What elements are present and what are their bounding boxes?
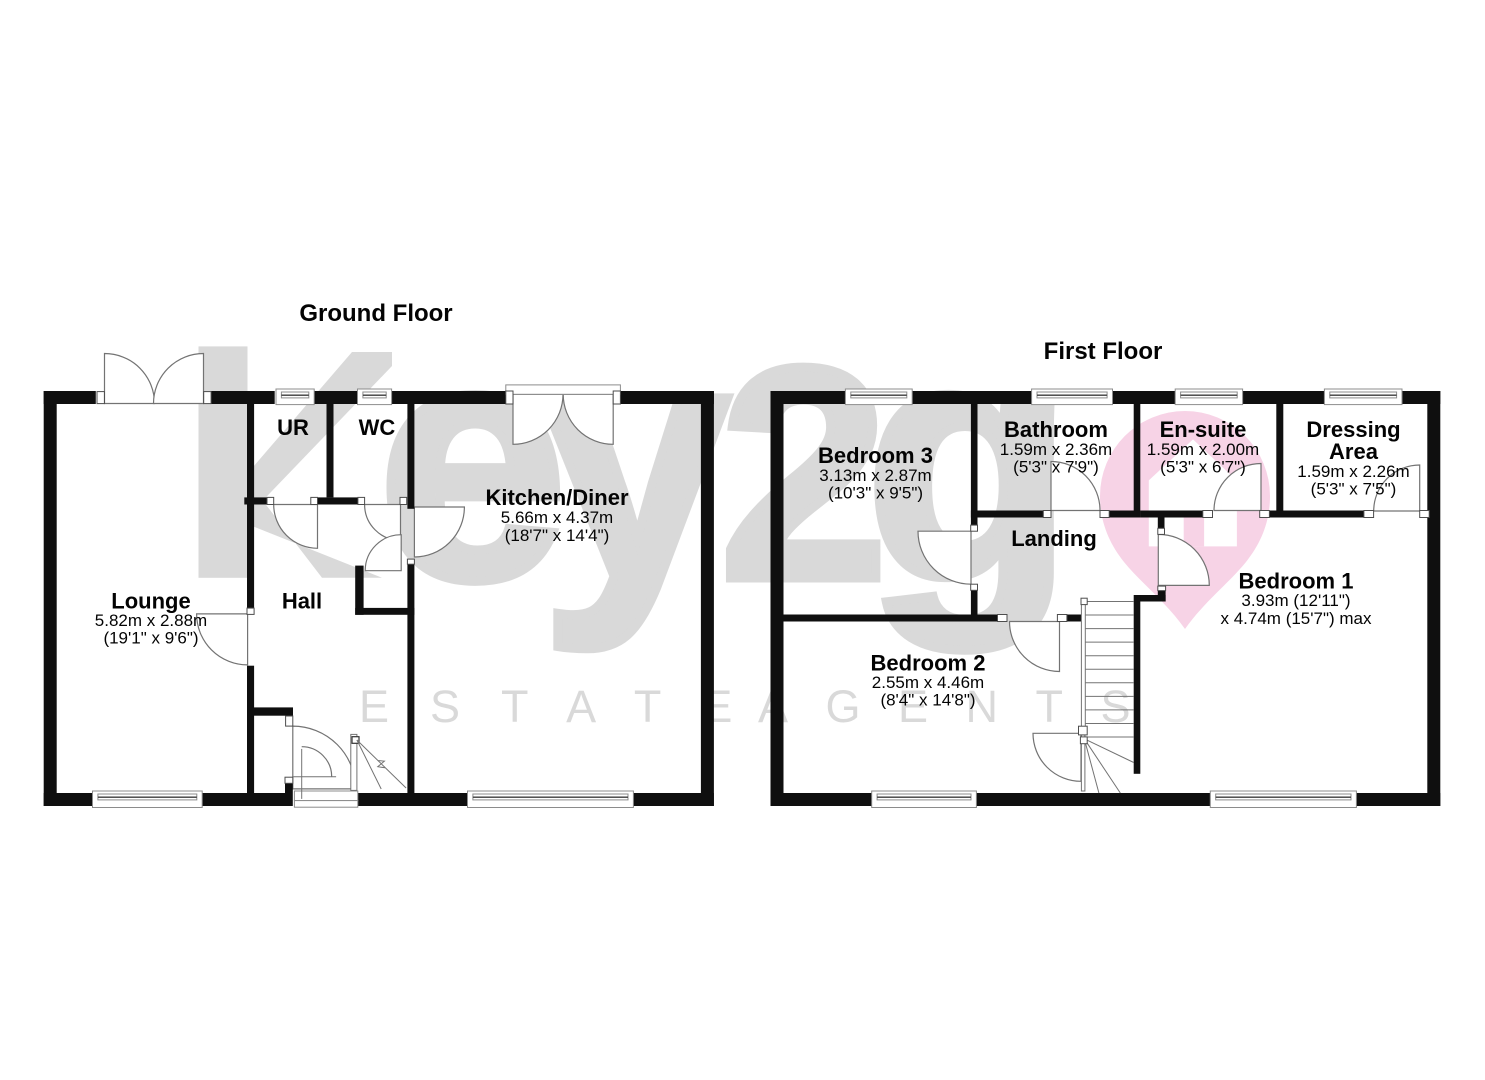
svg-text:Landing: Landing	[1011, 526, 1097, 551]
svg-text:3.13m x 2.87m: 3.13m x 2.87m	[819, 466, 931, 485]
svg-text:(5'3" x 7'9"): (5'3" x 7'9")	[1013, 458, 1099, 477]
svg-text:WC: WC	[359, 415, 396, 440]
svg-text:5.82m x 2.88m: 5.82m x 2.88m	[95, 611, 207, 630]
svg-text:5.66m x 4.37m: 5.66m x 4.37m	[501, 508, 613, 527]
svg-text:Bedroom 1: Bedroom 1	[1239, 569, 1354, 594]
svg-text:Kitchen/Diner: Kitchen/Diner	[485, 485, 628, 510]
svg-text:Hall: Hall	[282, 589, 322, 614]
svg-text:Area: Area	[1329, 439, 1379, 464]
svg-text:UR: UR	[277, 415, 309, 440]
svg-text:(5'3" x 7'5"): (5'3" x 7'5")	[1311, 480, 1397, 499]
svg-text:1.59m x 2.36m: 1.59m x 2.36m	[1000, 440, 1112, 459]
svg-text:(18'7" x 14'4"): (18'7" x 14'4")	[505, 526, 610, 545]
svg-text:3.93m (12'11"): 3.93m (12'11")	[1241, 591, 1350, 610]
svg-text:(5'3" x 6'7"): (5'3" x 6'7")	[1160, 458, 1246, 477]
svg-text:2.55m x 4.46m: 2.55m x 4.46m	[872, 673, 984, 692]
svg-text:1.59m x 2.26m: 1.59m x 2.26m	[1297, 462, 1409, 481]
svg-text:First Floor: First Floor	[1044, 338, 1163, 365]
svg-text:Bedroom 3: Bedroom 3	[818, 443, 933, 468]
svg-text:(8'4" x 14'8"): (8'4" x 14'8")	[880, 691, 975, 710]
svg-text:En-suite: En-suite	[1160, 417, 1247, 442]
svg-text:x 4.74m (15'7") max: x 4.74m (15'7") max	[1221, 609, 1372, 628]
svg-text:1.59m x 2.00m: 1.59m x 2.00m	[1147, 440, 1259, 459]
svg-text:(19'1" x 9'6"): (19'1" x 9'6")	[103, 629, 198, 648]
svg-text:e: e	[378, 270, 568, 651]
svg-text:Bathroom: Bathroom	[1004, 417, 1108, 442]
svg-text:Bedroom 2: Bedroom 2	[871, 651, 986, 676]
svg-text:Lounge: Lounge	[111, 589, 190, 614]
svg-text:Ground Floor: Ground Floor	[299, 300, 452, 327]
svg-text:(10'3" x 9'5"): (10'3" x 9'5")	[828, 484, 923, 503]
